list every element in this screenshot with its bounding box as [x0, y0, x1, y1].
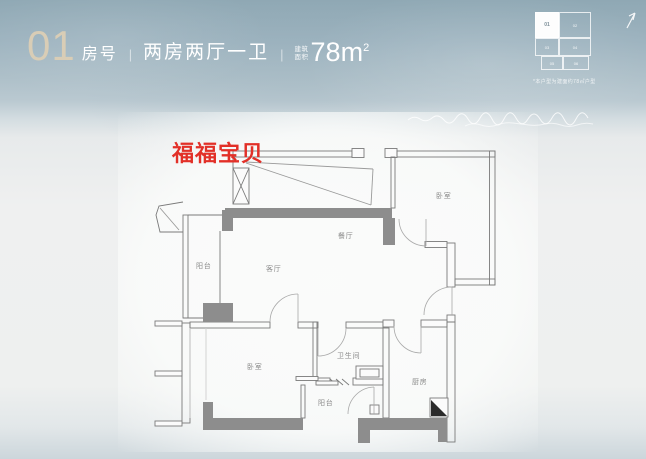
room-labels: 阳台 客厅 餐厅 卧室 卧室 卫生间 阳台 厨房 — [196, 191, 452, 407]
balcony-railing — [183, 215, 188, 318]
entry-door-swing — [246, 162, 373, 205]
room-label-bedroom-bottom: 卧室 — [247, 362, 263, 371]
watermark: 福福宝贝 — [172, 136, 264, 168]
sliding-door — [296, 377, 338, 386]
room-label-bathroom: 卫生间 — [337, 351, 360, 360]
bay-window — [155, 321, 190, 426]
room-label-kitchen: 厨房 — [412, 377, 428, 386]
room-label-living: 客厅 — [266, 264, 282, 273]
floor-plan: 阳台 客厅 餐厅 卧室 卧室 卫生间 阳台 厨房 — [0, 0, 646, 459]
room-label-bedroom-top: 卧室 — [436, 191, 452, 200]
flue-icon — [430, 398, 448, 417]
room-label-balcony-left: 阳台 — [196, 261, 212, 270]
room-label-dining: 餐厅 — [338, 231, 354, 240]
room-label-balcony-bottom: 阳台 — [318, 398, 334, 407]
ac-platform — [156, 202, 183, 232]
thick-walls — [203, 208, 447, 443]
basin-fixture — [356, 366, 383, 379]
